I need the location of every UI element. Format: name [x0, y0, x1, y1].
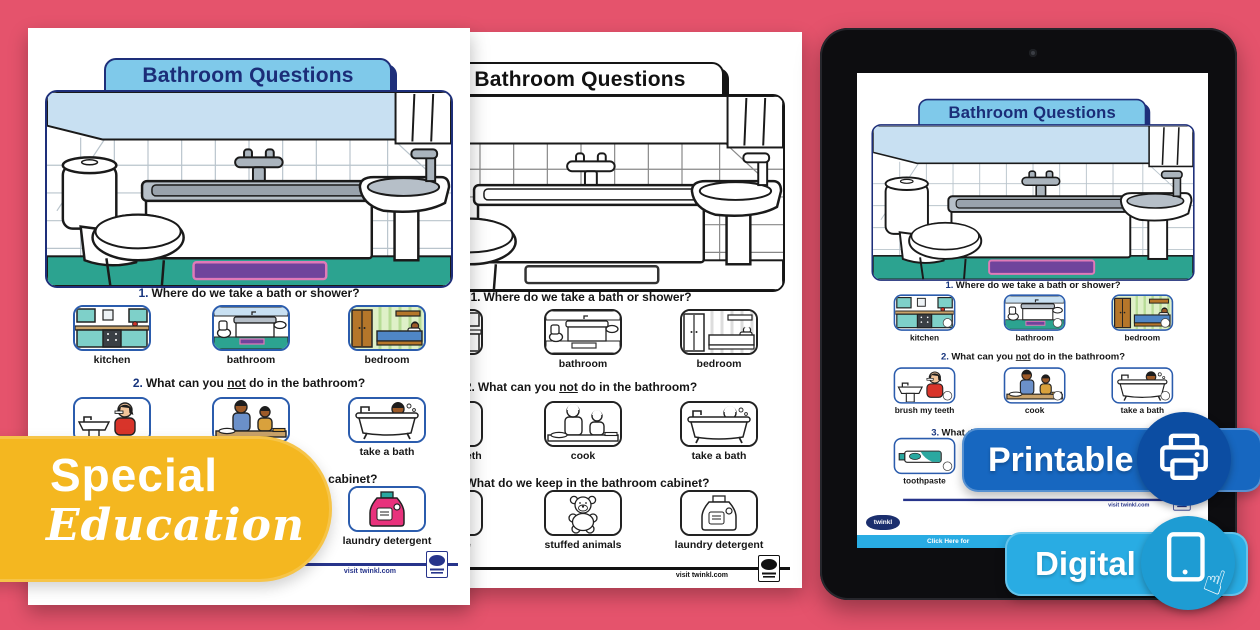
option-image-kitchen[interactable] [73, 305, 151, 351]
option-bathroom: bathroom [544, 309, 622, 370]
tablet: Bathroom Questions 1.Where do we take a … [820, 28, 1237, 600]
option-kitchen: kitchen [894, 294, 956, 342]
question-2-underlined-word: not [227, 376, 246, 390]
question-2-number: 2. [133, 376, 143, 390]
option-label: kitchen [94, 354, 131, 366]
question-3-number: 3. [931, 427, 939, 438]
special-education-line2: Education [46, 500, 305, 551]
question-2-text: What can you [146, 376, 227, 390]
option-image-bathroom[interactable] [1004, 294, 1066, 330]
option-label: brush my teeth [895, 406, 955, 416]
bottom-banner-text: Click Here for [927, 538, 969, 545]
option-image-bathroom[interactable] [212, 305, 290, 351]
question-2: 2.What can you not do in the bathroom? [858, 351, 1208, 362]
question-2-text-end: do in the bathroom? [1031, 351, 1126, 362]
option-label: cook [571, 450, 596, 462]
option-bedroom: bedroom [348, 305, 426, 366]
option-label: take a bath [692, 450, 747, 462]
question-2-text-end: do in the bathroom? [578, 380, 697, 394]
option-take-a-bath: take a bath [1111, 367, 1173, 415]
question-1-text: Where do we take a bath or shower? [483, 290, 691, 304]
option-image-laundry-detergent[interactable] [680, 490, 758, 536]
special-education-line1: Special [50, 448, 218, 502]
option-toothpaste: toothpaste [894, 438, 956, 486]
option-label: bathroom [559, 358, 607, 370]
option-label: bathroom [1015, 333, 1053, 343]
option-image-cook[interactable] [1004, 367, 1066, 403]
question-2-number: 2. [941, 351, 949, 362]
option-label: bathroom [227, 354, 275, 366]
option-bathroom: bathroom [212, 305, 290, 366]
question-2-underlined-word: not [559, 380, 578, 394]
question-2-underlined-word: not [1016, 351, 1031, 362]
option-cook: cook [544, 401, 622, 462]
option-stuffed-animals: stuffed animals [544, 490, 622, 551]
option-label: kitchen [910, 333, 939, 343]
footer-rule [903, 499, 1198, 501]
question-1-number: 1. [470, 290, 480, 304]
worksheet-title-tab: Bathroom Questions [918, 99, 1146, 128]
question-1: 1.Where do we take a bath or shower? [28, 286, 470, 300]
option-label: take a bath [1121, 406, 1164, 416]
question-1-text: Where do we take a bath or shower? [151, 286, 359, 300]
option-label: stuffed animals [544, 539, 621, 551]
option-image-take-a-bath[interactable] [680, 401, 758, 447]
option-image-toothpaste[interactable] [894, 438, 956, 474]
option-cook: cook [1004, 367, 1066, 415]
option-bathroom: bathroom [1004, 294, 1066, 342]
bathroom-illustration [871, 124, 1194, 281]
printable-label: Printable [988, 441, 1133, 480]
option-image-kitchen[interactable] [894, 294, 956, 330]
worksheet-title-tab: Bathroom Questions [104, 58, 392, 94]
question-2: 2.What can you not do in the bathroom? [28, 376, 470, 390]
visit-twinkl-link[interactable]: visit twinkl.com [1108, 503, 1149, 509]
digital-label: Digital [1035, 545, 1136, 583]
option-label: bedroom [1125, 333, 1161, 343]
twinkl-logo [426, 551, 448, 578]
option-label: laundry detergent [343, 535, 432, 547]
special-education-badge: Special Education [0, 436, 332, 582]
visit-twinkl-link[interactable]: visit twinkl.com [676, 572, 728, 579]
worksheet-title: Bathroom Questions [474, 68, 685, 92]
visit-twinkl-link[interactable]: visit twinkl.com [344, 568, 396, 575]
question-2-text: What can you [478, 380, 559, 394]
option-label: laundry detergent [675, 539, 764, 551]
option-label: take a bath [360, 446, 415, 458]
option-kitchen: kitchen [73, 305, 151, 366]
option-image-bedroom[interactable] [348, 305, 426, 351]
option-bedroom: bedroom [680, 309, 758, 370]
question-3-text: What do we keep in the bathroom cabinet? [465, 476, 709, 490]
question-1-number: 1. [138, 286, 148, 300]
option-image-take-a-bath[interactable] [1111, 367, 1173, 403]
option-image-stuffed-animals[interactable] [544, 490, 622, 536]
worksheet-title: Bathroom Questions [949, 104, 1116, 123]
question-2-text-end: do in the bathroom? [246, 376, 365, 390]
worksheet-title-tab: Bathroom Questions [436, 62, 724, 98]
option-label: cook [1025, 406, 1044, 416]
option-take-a-bath: take a bath [348, 397, 426, 458]
option-bedroom: bedroom [1111, 294, 1173, 342]
option-image-cook[interactable] [544, 401, 622, 447]
option-laundry-detergent: laundry detergent [348, 486, 426, 547]
option-brush-my-teeth: brush my teeth [894, 367, 956, 415]
twinkl-cloud-logo: twinkl [866, 515, 900, 530]
twinkl-logo [758, 555, 780, 582]
question-1-text: Where do we take a bath or shower? [956, 279, 1121, 290]
question-1: 1.Where do we take a bath or shower? [858, 279, 1208, 290]
option-image-bedroom[interactable] [680, 309, 758, 355]
option-label: bedroom [365, 354, 410, 366]
option-take-a-bath: take a bath [680, 401, 758, 462]
option-laundry-detergent: laundry detergent [680, 490, 758, 551]
camera-dot [1029, 49, 1037, 57]
option-label: toothpaste [903, 477, 946, 487]
question-2-text: What can you [951, 351, 1015, 362]
option-image-laundry-detergent[interactable] [348, 486, 426, 532]
option-image-take-a-bath[interactable] [348, 397, 426, 443]
footer-rule [417, 567, 790, 570]
promo-image: Bathroom Questions 1.Where do we take a … [0, 0, 1260, 630]
option-image-bedroom[interactable] [1111, 294, 1173, 330]
question-1-number: 1. [945, 279, 953, 290]
option-image-brush-my-teeth[interactable] [894, 367, 956, 403]
printer-icon [1137, 412, 1231, 506]
worksheet-title: Bathroom Questions [142, 64, 353, 88]
option-image-bathroom[interactable] [544, 309, 622, 355]
brand-name: twinkl [874, 519, 892, 526]
bathroom-illustration [45, 90, 453, 288]
tablet-touch-icon: ☝ [1141, 516, 1235, 610]
option-label: bedroom [697, 358, 742, 370]
